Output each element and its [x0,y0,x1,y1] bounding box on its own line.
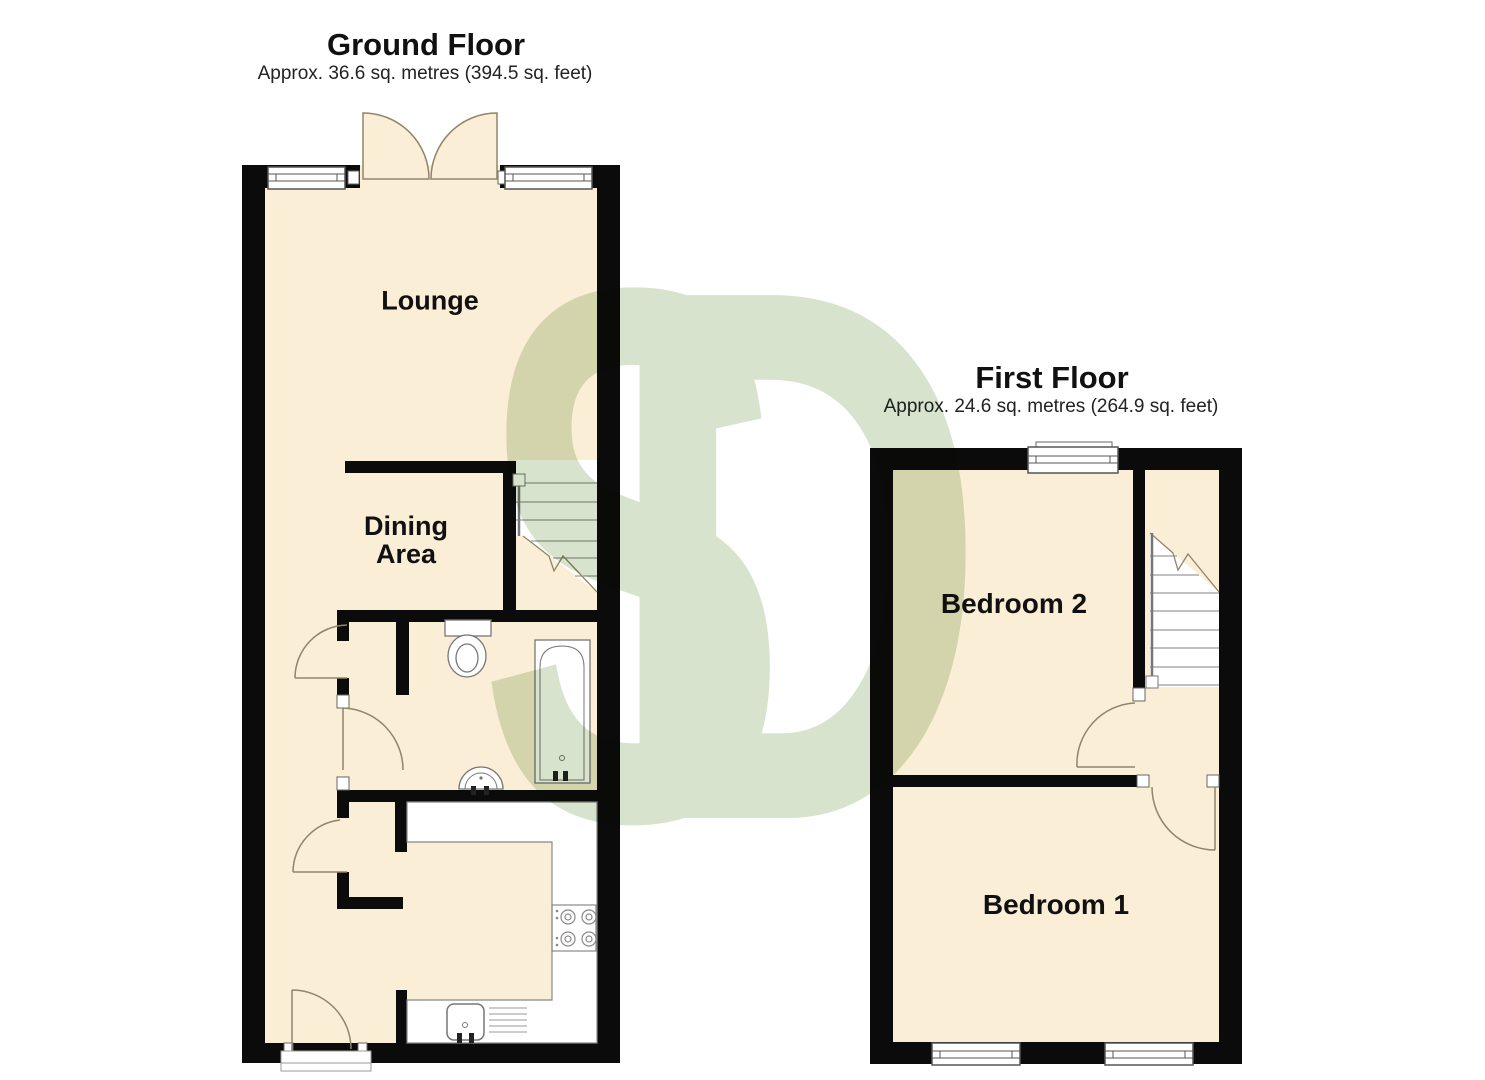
first-floor-title: First Floor [975,360,1128,396]
ground-floor-subtitle: Approx. 36.6 sq. metres (394.5 sq. feet) [258,63,593,85]
stair-newel [1146,676,1158,688]
lounge-window-left [268,167,345,189]
dining-line1: Dining [364,511,448,541]
ground-floor-title: Ground Floor [327,27,525,63]
kitchen-sink-icon [447,1004,484,1043]
dining-line2: Area [376,539,436,569]
first-floor-subtitle: Approx. 24.6 sq. metres (264.9 sq. feet) [884,396,1219,418]
room-label-dining: Dining Area [364,512,448,568]
bedroom2-window [1028,442,1118,473]
floorplan-page: Ground Floor Approx. 36.6 sq. metres (39… [0,0,1485,1080]
bedroom1-window-right [1105,1043,1193,1065]
bedroom1-window-left [932,1043,1020,1065]
room-label-bedroom2: Bedroom 2 [941,588,1087,620]
room-label-lounge: Lounge [381,286,478,317]
room-label-bedroom1: Bedroom 1 [983,889,1129,921]
stair-newel [513,474,525,486]
ground-floor-plan [242,113,620,1071]
lounge-window-right [505,167,592,189]
bath-icon [535,640,590,783]
entrance-threshold [281,1051,371,1071]
first-floor-plan [870,442,1242,1065]
floorplan-drawing [0,0,1485,1080]
